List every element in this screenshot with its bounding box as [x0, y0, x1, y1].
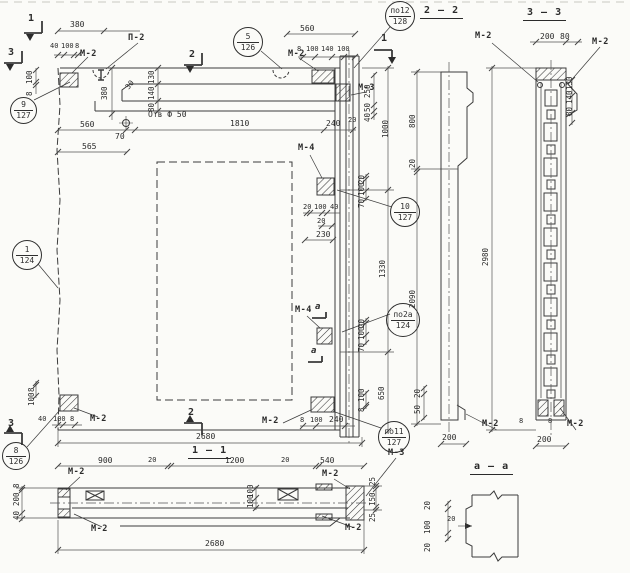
- detail-a-a: [466, 491, 518, 561]
- mark-m2: М-2: [345, 524, 362, 533]
- callout-po2a-124: по2а 124: [386, 303, 420, 337]
- mark-m2: М-2: [567, 420, 584, 429]
- cut-marker-3: 3: [8, 48, 14, 58]
- dim-20: 20: [424, 543, 432, 552]
- mark-m2: М-2: [91, 525, 108, 534]
- dim-140: 140: [566, 90, 574, 104]
- section-3-3: [536, 60, 577, 435]
- callout-sheet: 127: [398, 213, 412, 223]
- callout-9-127: 9 127: [10, 97, 37, 124]
- dimension-lines: [16, 31, 582, 554]
- dim-100: 100: [53, 416, 66, 423]
- dim-100: 100: [358, 182, 366, 196]
- dim-380: 380: [101, 86, 109, 100]
- mark-m2: М-2: [68, 468, 85, 477]
- callout-sheet: 124: [396, 321, 410, 331]
- mark-m2: М-2: [90, 415, 107, 424]
- dim-100: 100: [306, 46, 319, 53]
- dim-100: 100: [337, 46, 350, 53]
- section-2-2: [441, 62, 473, 433]
- dim-8: 8: [519, 418, 523, 425]
- dim-140: 140: [321, 46, 334, 53]
- dim-50: 50: [414, 405, 422, 414]
- callout-sheet: 124: [20, 256, 34, 266]
- callout-sheet: 126: [241, 43, 255, 53]
- dim-25: 25: [369, 477, 377, 486]
- dim-100: 100: [358, 388, 366, 402]
- callout-8-126: 8 126: [2, 442, 30, 470]
- cut-marker-1: 1: [28, 14, 34, 24]
- callout-number: 1: [16, 245, 38, 256]
- dim-70: 70: [115, 133, 125, 141]
- dim-565: 565: [82, 143, 96, 151]
- drawing-sheet: 9 127 5 126 по12 128 1 124 10 127 по2а 1…: [0, 0, 630, 573]
- dim-200: 200: [540, 33, 554, 41]
- dim-8: 8: [548, 418, 552, 425]
- dim-80: 80: [560, 33, 570, 41]
- cut-marker-3b: 3: [8, 419, 14, 429]
- dim-560: 560: [80, 121, 94, 129]
- dim-200: 200: [442, 434, 456, 442]
- mark-leaders: [66, 43, 600, 527]
- cut-marker-a: а: [315, 303, 320, 312]
- cut-marker-2b: 2: [188, 408, 194, 418]
- dim-1330: 1330: [379, 260, 387, 278]
- dim-8: 8: [26, 91, 34, 96]
- mark-m2: М-2: [475, 32, 492, 41]
- callout-po12-128: по12 128: [385, 1, 415, 31]
- dim-1000: 1000: [382, 120, 390, 138]
- callout-number: по11: [382, 427, 405, 438]
- dim-200: 200: [13, 492, 21, 506]
- dim-100: 100: [314, 204, 327, 211]
- dim-380: 380: [70, 21, 84, 29]
- section-title-3-3: 3 — 3: [523, 8, 566, 21]
- dim-70: 70: [358, 199, 366, 208]
- dim-40: 40: [13, 511, 21, 520]
- drawing-linework: [0, 0, 630, 573]
- callout-10-127: 10 127: [390, 197, 420, 227]
- callout-number: 5: [237, 32, 259, 43]
- dim-900: 900: [98, 457, 112, 465]
- cut-marker-a2: а: [311, 347, 316, 356]
- dim-20: 20: [303, 204, 311, 211]
- dim-2090: 2090: [409, 290, 417, 308]
- callout-sheet: 126: [9, 457, 23, 467]
- dim-20: 20: [281, 457, 289, 464]
- dim-540: 540: [320, 457, 334, 465]
- dim-8: 8: [358, 407, 366, 412]
- callout-number: 9: [14, 100, 34, 111]
- dim-230: 230: [316, 231, 330, 239]
- dim-40: 40: [364, 113, 372, 122]
- dim-8: 8: [75, 43, 79, 50]
- dim-40: 40: [50, 43, 58, 50]
- section-title-a-a: а — а: [470, 462, 513, 475]
- dim-1810: 1810: [230, 120, 249, 128]
- dim-100: 100: [28, 392, 36, 406]
- cut-marker-1b: 1: [381, 34, 387, 44]
- mark-m2: М-2: [262, 417, 279, 426]
- dim-80: 80: [566, 107, 574, 116]
- dim-40: 40: [38, 416, 46, 423]
- mark-m4: М-4: [295, 306, 312, 315]
- mark-m4: М-4: [298, 144, 315, 153]
- dim-20: 20: [447, 516, 455, 523]
- dim-100: 100: [424, 520, 432, 534]
- dim-20: 20: [317, 218, 325, 225]
- dim-20: 20: [348, 117, 356, 124]
- callout-sheet: 128: [393, 17, 407, 27]
- dim-1200: 1200: [225, 457, 244, 465]
- main-view: [57, 50, 359, 443]
- dim-2680: 2680: [196, 433, 215, 441]
- dim-20: 20: [414, 389, 422, 398]
- callout-sheet: 127: [16, 111, 30, 121]
- dim-100: 100: [358, 326, 366, 340]
- dim-240: 240: [326, 120, 340, 128]
- dim-800: 800: [409, 114, 417, 128]
- callout-5-126: 5 126: [233, 27, 263, 57]
- dim-70: 70: [358, 343, 366, 352]
- callout-number: по2а: [391, 310, 416, 321]
- dim-8: 8: [13, 483, 21, 488]
- dim-40: 40: [330, 204, 338, 211]
- dim-650: 650: [378, 386, 386, 400]
- callout-number: 8: [6, 446, 26, 457]
- dim-20: 20: [424, 501, 432, 510]
- section-title-2-2: 2 — 2: [420, 6, 463, 19]
- dim-8: 8: [297, 46, 301, 53]
- mark-m2: М-2: [80, 50, 97, 59]
- mark-m3: М-3: [388, 449, 405, 458]
- hole-note: Отв Ф 50: [148, 111, 187, 119]
- section-1-1: [50, 484, 370, 526]
- dim-560: 560: [300, 25, 314, 33]
- dim-250: 250: [364, 84, 372, 98]
- dim-130: 130: [148, 70, 156, 84]
- dim-200: 200: [537, 436, 551, 444]
- dim-240: 240: [329, 416, 343, 424]
- dim-150: 150: [369, 492, 377, 506]
- mark-p2: П-2: [128, 34, 145, 43]
- mark-m2: М-2: [592, 38, 609, 47]
- dim-50: 50: [364, 103, 372, 112]
- callout-number: по12: [389, 6, 411, 17]
- mark-m2: М-2: [482, 420, 499, 429]
- dim-8: 8: [300, 417, 304, 424]
- dim-100: 100: [247, 494, 255, 508]
- dim-100: 100: [61, 43, 74, 50]
- dim-100: 100: [310, 417, 323, 424]
- dim-100: 100: [26, 70, 34, 84]
- dim-20: 20: [409, 159, 417, 168]
- callout-sheet: 127: [387, 438, 401, 448]
- mark-m2: М-2: [322, 470, 339, 479]
- dim-8: 8: [70, 416, 74, 423]
- dim-2980: 2980: [482, 248, 490, 266]
- dim-2680: 2680: [205, 540, 224, 548]
- callout-1-124: 1 124: [12, 240, 42, 270]
- dim-20: 20: [148, 457, 156, 464]
- dim-130: 130: [566, 76, 574, 90]
- dim-140: 140: [148, 86, 156, 100]
- dim-80: 80: [148, 103, 156, 112]
- dim-25: 25: [369, 513, 377, 522]
- callout-number: 10: [394, 202, 416, 213]
- cut-marker-2: 2: [189, 50, 195, 60]
